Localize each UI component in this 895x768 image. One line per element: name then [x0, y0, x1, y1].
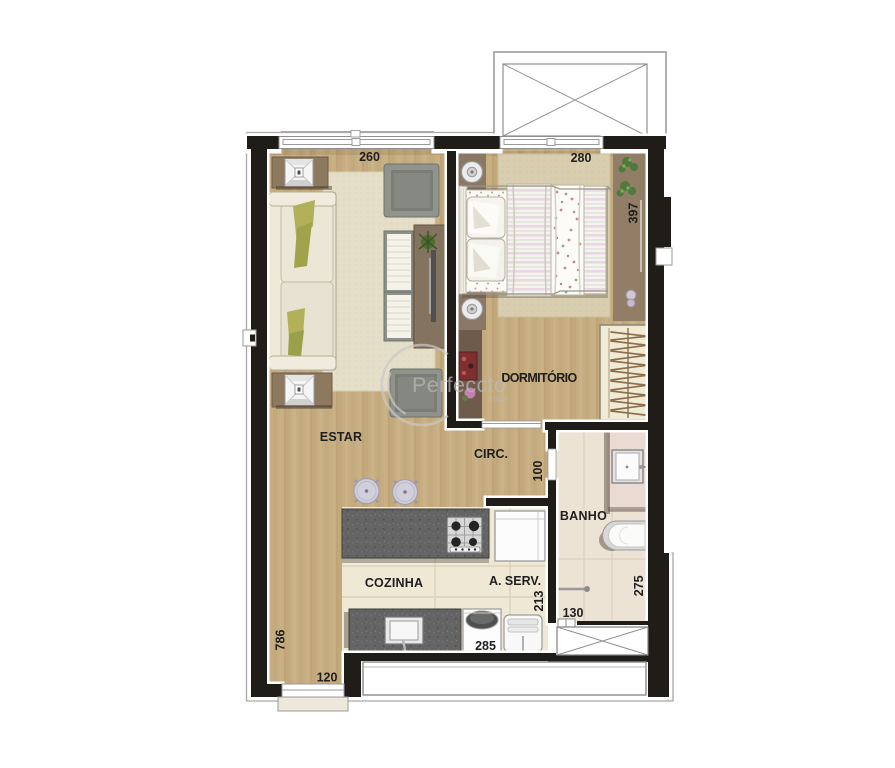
- svg-text:ESTAR: ESTAR: [320, 430, 362, 444]
- svg-text:280: 280: [571, 151, 592, 165]
- svg-text:COZINHA: COZINHA: [365, 576, 423, 590]
- svg-text:397: 397: [627, 203, 641, 224]
- svg-text:imob: imob: [489, 394, 507, 403]
- svg-text:260: 260: [359, 150, 380, 164]
- svg-text:285: 285: [475, 639, 496, 653]
- svg-text:130: 130: [563, 606, 584, 620]
- svg-text:275: 275: [632, 575, 646, 596]
- svg-text:BANHO: BANHO: [560, 509, 607, 523]
- svg-text:213: 213: [532, 591, 546, 612]
- svg-text:CIRC.: CIRC.: [474, 447, 508, 461]
- svg-text:120: 120: [317, 671, 338, 685]
- svg-text:A. SERV.: A. SERV.: [489, 574, 541, 588]
- svg-text:786: 786: [274, 630, 288, 651]
- svg-text:DORMITÓRIO: DORMITÓRIO: [501, 370, 577, 385]
- svg-text:100: 100: [531, 461, 545, 482]
